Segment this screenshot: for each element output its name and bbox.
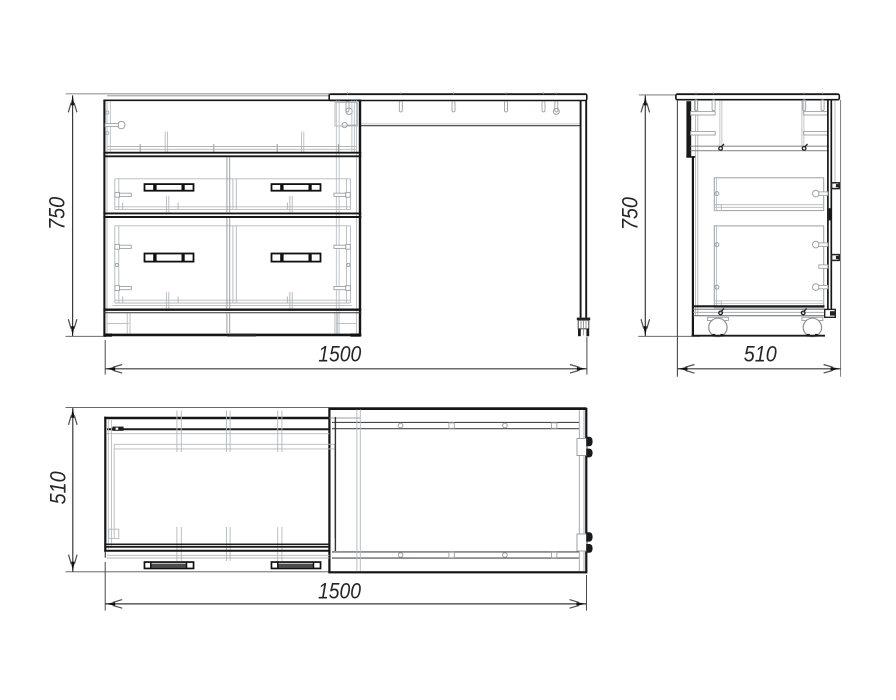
svg-text:750: 750: [45, 196, 70, 229]
svg-text:750: 750: [618, 197, 643, 230]
svg-text:1500: 1500: [318, 342, 361, 367]
svg-text:510: 510: [46, 471, 71, 504]
svg-text:510: 510: [744, 342, 777, 367]
svg-text:1500: 1500: [318, 579, 361, 604]
